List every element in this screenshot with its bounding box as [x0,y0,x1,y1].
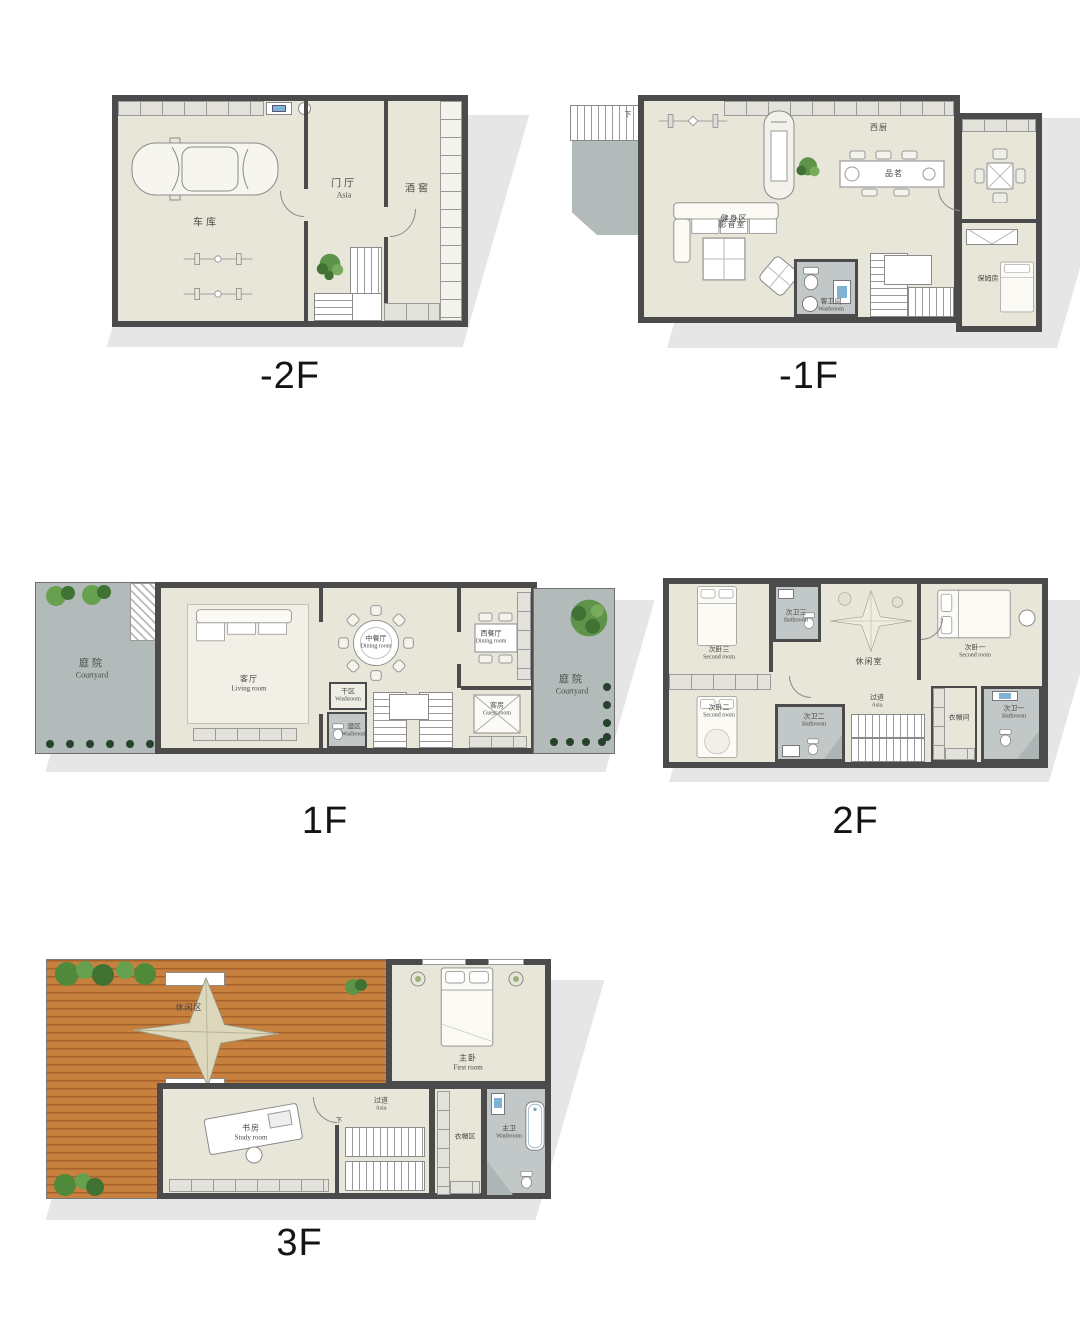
room-label-closet-2f: 衣帽间 [949,713,970,722]
tree-icon [566,595,612,641]
shower-corner [1017,731,1039,759]
plant-icon [314,249,346,283]
canopy-icon [131,976,281,1088]
cabinet-row [469,736,527,748]
wine-rack [440,101,462,321]
barbell-icon [652,113,734,129]
kitchen-counter [517,592,531,680]
1f-main: 客厅 Living room [155,582,537,754]
wall [457,588,461,632]
room-label-west-dining: 西餐厅 Dining room [476,630,507,647]
bed-icon [691,586,743,646]
minus1f-washroom: 客卫间 Washroom [794,259,858,317]
room-label-hallway-2f: 过道 Asia [870,694,884,711]
wall [319,588,323,622]
coffee-table-icon [702,237,746,281]
room-label-wine-cellar: 酒窖 [405,183,431,196]
planting-row [548,737,610,747]
stair-down-label: 下 [336,1116,343,1125]
washer-icon [802,296,818,312]
room-label-guest-washroom: 客卫间 Washroom [818,298,844,315]
room-label-master-bedroom: 主卧 First room [453,1053,482,1072]
stair-landing [352,293,382,321]
toilet-icon [801,266,821,292]
wall [304,101,308,189]
sink-icon [782,745,800,757]
door-arc [280,191,304,217]
sink-icon [266,102,292,115]
door-arc [789,676,811,698]
room-label-av-room: 影音室 [719,220,746,230]
room-label-dry-area: 干区 Washroom [335,688,361,705]
toilet-icon [806,737,820,757]
stairs [851,738,925,762]
room-label-foyer: 门厅 Asia [331,177,357,200]
stairs [345,1127,425,1157]
window [488,959,524,965]
wet-area: 湿区 Washroom [327,712,367,748]
wardrobe-icon [966,229,1018,245]
courtyard-left: 庭院 Courtyard [35,582,175,754]
room-label-leisure-room: 休闲室 [856,657,883,667]
floor-caption-3f: 3F [42,1222,557,1265]
room-label-bath2: 次卫二 Bathroom [802,713,826,730]
stairs [851,714,925,738]
toilet-icon [998,727,1013,749]
wall [335,1125,339,1193]
room-label-tea-bar: 品茗 [885,169,903,179]
shower-area [487,1161,513,1195]
garage-cabinets [118,101,264,116]
room-label-study: 书房 Study room [235,1123,268,1142]
room-label-chinese-dining: 中餐厅 Dining room [361,635,392,652]
minus1f-right-wing: 保姆房 [956,113,1042,332]
tv-cabinet [193,728,297,741]
floor-caption-minus2f: -2F [112,355,468,398]
wall [461,686,531,690]
room-label-closet-area: 衣帽区 [455,1132,476,1141]
room-label-courtyard-right: 庭院 Courtyard [556,673,588,696]
plan-3f: 休闲区 主卧 First room [42,955,557,1203]
car-icon [130,137,280,201]
stairs [345,1161,425,1191]
room-label-courtyard-left: 庭院 Courtyard [76,657,108,680]
wine-cabinets [384,303,440,321]
sink-icon [778,589,794,599]
closet-cells [450,1181,480,1194]
flower-icon [508,971,524,987]
door-arc [390,209,416,237]
master-bedroom: 主卧 First room [386,959,551,1087]
dry-area: 干区 Washroom [329,682,367,710]
bed-icon [937,588,1011,640]
sink-icon [992,691,1018,701]
wall [319,714,323,748]
bath2: 次卫二 Bathroom [775,704,845,762]
toilet-icon [519,1169,534,1191]
wall [962,219,1036,223]
kitchen-counter [724,101,954,116]
wardrobe-row [669,674,771,690]
room-label-nanny-room: 保姆房 [978,274,999,283]
bath1: 次卫一 Bathroom [981,686,1042,762]
equipment-icon [173,251,263,267]
closet-cells [933,688,945,760]
bath3: 次卫三 Bathroom [773,584,821,642]
room-label-bath1: 次卫一 Bathroom [1002,705,1026,722]
room-label-bedroom3: 次卧三 Second room [703,646,735,663]
stairs [350,247,382,295]
mahjong-table-icon [974,147,1026,203]
wall [384,101,388,207]
3f-lower-block: 书房 Study room 过道 Asia 下 [157,1083,435,1199]
planting-row [42,739,162,749]
flower-icon [410,971,426,987]
minus1f-main: 西厨 健身区 [638,95,960,323]
equipment-icon [173,286,263,302]
stairs [908,287,954,317]
room-label-living-room: 客厅 Living room [231,674,266,693]
stair-landing [884,255,932,285]
plant-icon [343,976,369,998]
room-label-hallway-3f: 过道 Asia [374,1097,388,1114]
bed-icon [438,967,496,1047]
shrubs-icon [42,583,118,609]
window [422,959,466,965]
stairs [314,293,354,321]
treadmill-icon [762,109,796,201]
door-arc [313,1097,337,1123]
planting-col [602,681,612,741]
master-bath: 主卫 Washroom [481,1083,551,1199]
room-label-west-kitchen: 西厨 [870,123,888,133]
sofa-icon [195,608,293,654]
room-label-garage: 车库 [193,217,219,230]
room-label-bedroom1: 次卧一 Second room [959,644,991,661]
plan-minus2f: 车库 门厅 Asia 酒窖 [112,95,468,327]
stair-landing [389,694,429,720]
bed-icon [1000,251,1034,323]
plan-2f: 次卧三 Second room 次卫三 Bathroom [663,578,1048,768]
floor-caption-2f: 2F [663,800,1048,843]
floor-caption-minus1f: -1F [570,355,1048,398]
stair-down-label: 下 [625,110,632,119]
plant-icon [794,153,822,183]
entry-ramp [572,141,638,235]
closet-cells [437,1091,450,1195]
tent-icon [829,588,913,654]
room-label-wet-area: 湿区 Washroom [341,723,367,740]
room-label-roof-deck: 休闲区 [176,1003,203,1013]
room-label-master-bath: 主卫 Washroom [496,1125,522,1142]
shower-corner [824,735,842,759]
room-label-bedroom2: 次卧二 Second room [703,704,735,721]
floor-plan-sheet: 车库 门厅 Asia 酒窖 -2 [0,0,1080,1334]
wall [304,221,308,321]
room-label-bath3: 次卫三 Bathroom [784,609,808,626]
plan-1f: 庭院 Courtyard 客厅 Living room [35,578,615,758]
closet-2f: 衣帽间 [931,686,977,762]
shrubs-icon [51,1172,109,1198]
sink-icon [491,1093,505,1115]
wall [457,664,461,688]
plan-minus1f: 下 西厨 健身区 [570,95,1048,332]
desk-chair-icon [1017,608,1037,628]
courtyard-right: 庭院 Courtyard [533,588,615,754]
closet-area: 衣帽区 [429,1083,487,1199]
closet-cells [945,748,975,760]
floor-caption-1f: 1F [35,800,615,843]
room-label-guest-room: 客房 Guest room [483,702,511,719]
cabinet-row [169,1179,329,1192]
bathtub-icon [525,1095,545,1157]
cabinet-row [962,119,1036,132]
